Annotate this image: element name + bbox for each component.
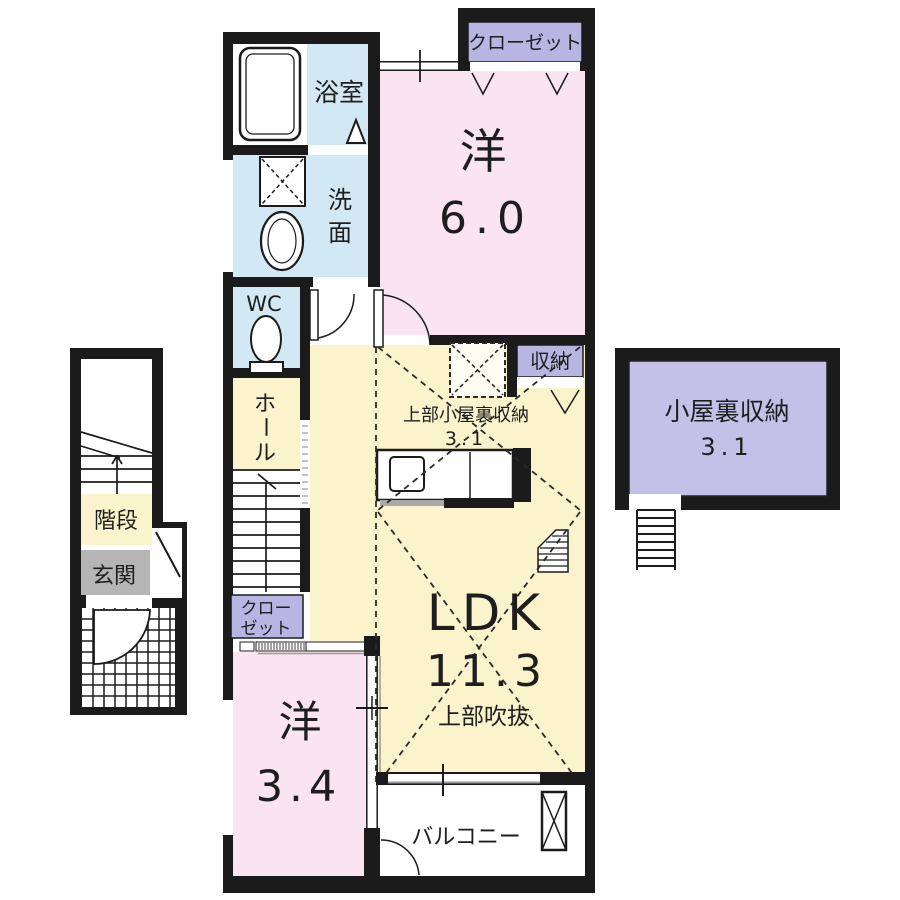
label-closet-2f-1: クロー: [241, 599, 292, 619]
loft-hatch-box: [450, 343, 505, 397]
main-building: [223, 8, 595, 893]
wc-door-leaf: [310, 290, 318, 340]
kitchen-counter: [377, 448, 531, 508]
toilet-tank: [250, 362, 283, 373]
label-attic-size: 3.1: [700, 433, 753, 461]
hall-window-strip: [300, 420, 310, 508]
attic-ladder: [637, 510, 675, 570]
balcony-unit-box: [542, 792, 566, 850]
washroom-window: [223, 160, 233, 272]
label-ldk-size: 11.3: [426, 646, 548, 697]
bathtub-inner: [246, 54, 294, 134]
label-attic-name: 小屋裏収納: [664, 397, 789, 426]
annex-doorway: [152, 528, 182, 598]
label-stairs-1f: 階段: [94, 509, 138, 534]
closet-2f-door: [240, 642, 306, 651]
label-storage: 収納: [530, 349, 570, 373]
label-closet-2f-2: ゼット: [241, 619, 292, 639]
label-hall-3: ル: [254, 441, 276, 466]
closet-top-front: [470, 62, 580, 71]
label-closet-top: クローゼット: [468, 32, 582, 54]
label-loft-note: 上部小屋裏収納: [403, 405, 529, 426]
label-wash-1: 洗: [328, 186, 352, 214]
label-hall-2: ー: [252, 416, 277, 438]
bath-door-gap: [308, 145, 368, 155]
floor-plan: クローゼット 浴室 洗 面 WC ホ ー ル 階段 玄関 クロー ゼット 洋 6…: [0, 0, 900, 900]
bedroom6-door-leaf: [374, 290, 383, 347]
label-wc: WC: [246, 292, 281, 316]
label-bedroom6-name: 洋: [460, 125, 507, 180]
label-hall-1: ホ: [254, 392, 276, 417]
label-entrance: 玄関: [92, 564, 136, 589]
label-wash-2: 面: [328, 219, 352, 247]
floor-plan-svg: クローゼット 浴室 洗 面 WC ホ ー ル 階段 玄関 クロー ゼット 洋 6…: [0, 0, 900, 900]
label-bedroom6-size: 6.0: [439, 193, 533, 244]
label-balcony: バルコニー: [411, 825, 521, 850]
label-ldk-name: LDK: [427, 584, 547, 642]
label-bath: 浴室: [314, 78, 364, 107]
label-ldk-note: 上部吹抜: [438, 704, 530, 730]
washing-machine-pan: [260, 157, 305, 206]
bedroom34-window: [223, 700, 233, 835]
label-bedroom34-name: 洋: [279, 698, 322, 748]
wash-basin-inner: [268, 219, 296, 263]
toilet-bowl: [251, 316, 281, 362]
attic-opening: [629, 494, 681, 510]
porch-threshold: [86, 595, 152, 610]
label-bedroom34-size: 3.4: [256, 762, 342, 812]
label-loft-size: 3.1: [445, 428, 487, 450]
washroom-door-gap: [313, 277, 368, 287]
attic-room: [629, 361, 827, 496]
